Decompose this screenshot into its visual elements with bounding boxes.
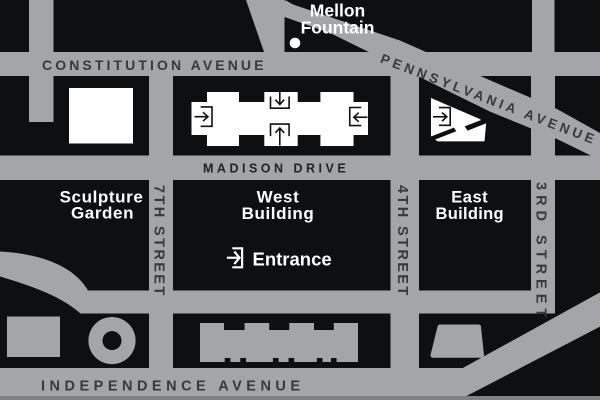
svg-text:Building: Building bbox=[242, 204, 315, 223]
svg-text:Building: Building bbox=[436, 205, 504, 223]
svg-text:Entrance: Entrance bbox=[253, 248, 332, 269]
svg-text:CONSTITUTION AVENUE: CONSTITUTION AVENUE bbox=[42, 57, 267, 73]
svg-text:7TH STREET: 7TH STREET bbox=[151, 185, 167, 298]
svg-text:4TH STREET: 4TH STREET bbox=[394, 185, 410, 298]
svg-text:MADISON DRIVE: MADISON DRIVE bbox=[203, 162, 349, 176]
svg-text:Fountain: Fountain bbox=[301, 18, 375, 38]
svg-text:3RD STREET: 3RD STREET bbox=[533, 182, 549, 322]
svg-text:Garden: Garden bbox=[71, 204, 134, 223]
svg-text:INDEPENDENCE AVENUE: INDEPENDENCE AVENUE bbox=[41, 378, 305, 394]
